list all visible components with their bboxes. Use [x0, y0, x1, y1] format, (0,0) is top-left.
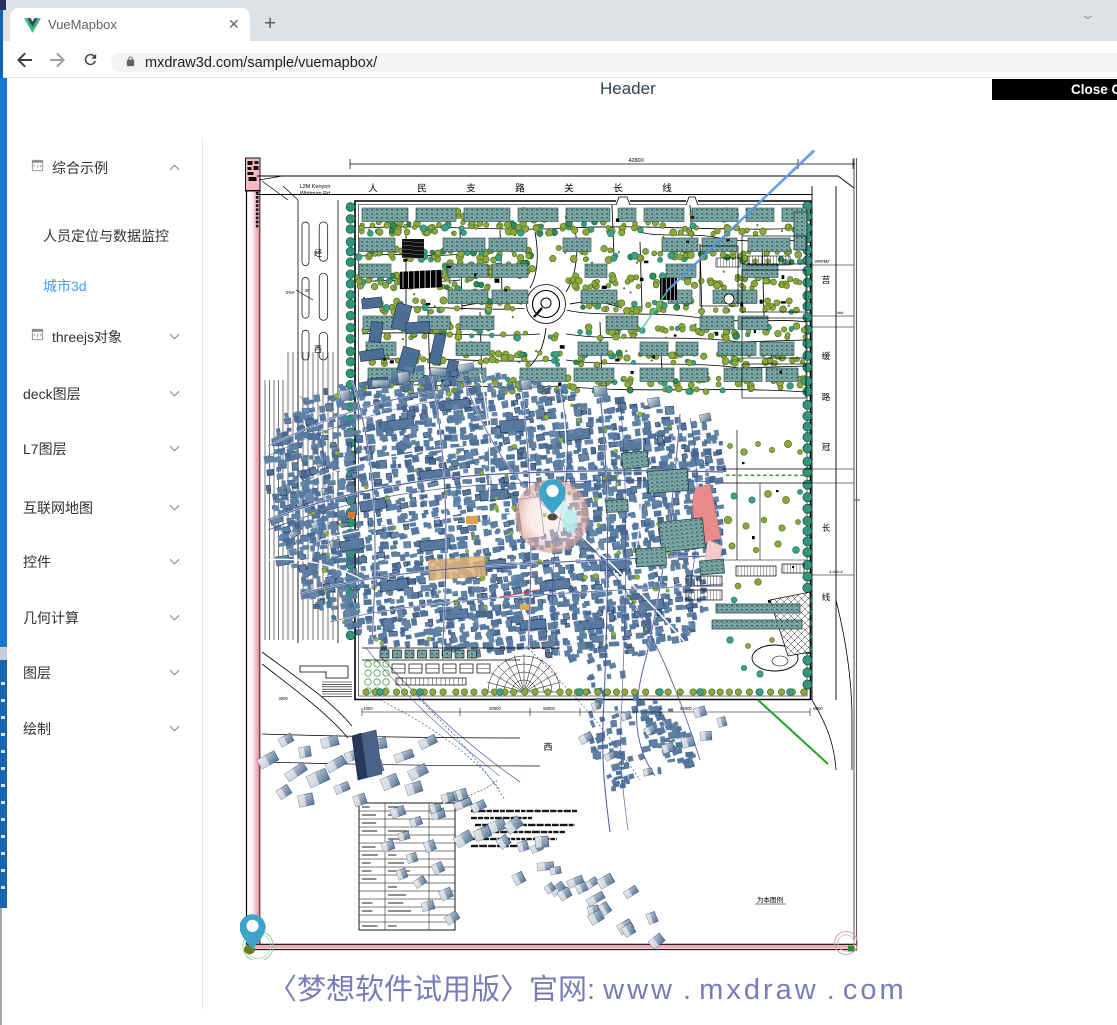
svg-text:3###M#: 3###M#: [814, 259, 830, 264]
svg-text:长: 长: [613, 183, 623, 195]
svg-text:为本图例: 为本图例: [757, 895, 783, 904]
svg-text:42800: 42800: [628, 158, 643, 164]
svg-text:冠: 冠: [822, 442, 831, 452]
svg-text:30000: 30000: [489, 706, 501, 711]
svg-text:L2M Kenyon: L2M Kenyon: [300, 184, 331, 190]
svg-text:1000: 1000: [363, 706, 373, 711]
svg-text:58000: 58000: [543, 706, 555, 711]
svg-text:民: 民: [417, 184, 427, 195]
svg-text:经: 经: [314, 248, 322, 258]
svg-text:路: 路: [515, 183, 525, 195]
svg-text:3#: 3#: [304, 288, 310, 293]
svg-text:人: 人: [368, 184, 378, 195]
svg-text:62000: 62000: [680, 706, 692, 711]
svg-text:4.###-#: 4.###-#: [829, 569, 843, 574]
svg-text:4##: 4##: [837, 310, 844, 315]
svg-text:3000: 3000: [278, 696, 288, 701]
svg-text:线: 线: [822, 592, 831, 602]
svg-text:西: 西: [543, 742, 552, 752]
svg-text:关: 关: [564, 183, 574, 195]
svg-text:缓: 缓: [822, 351, 831, 361]
svg-text:线: 线: [662, 183, 672, 195]
svg-text:3%#: 3%#: [285, 290, 295, 295]
svg-text:莒: 莒: [822, 275, 831, 285]
svg-text:Whitman Rd: Whitman Rd: [300, 191, 330, 197]
svg-text:长: 长: [822, 523, 831, 533]
svg-text:支: 支: [466, 183, 476, 195]
svg-text:路: 路: [822, 392, 831, 402]
